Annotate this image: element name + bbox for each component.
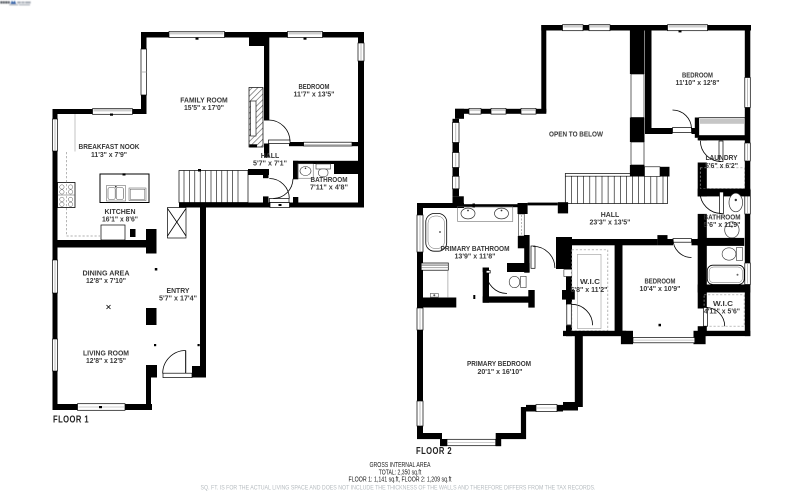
svg-text:11'3" x 7'9": 11'3" x 7'9" xyxy=(91,151,127,159)
svg-text:LAUNDRY: LAUNDRY xyxy=(706,153,738,162)
svg-text:15'5" x 17'0": 15'5" x 17'0" xyxy=(184,104,224,112)
svg-text:OPEN TO BELOW: OPEN TO BELOW xyxy=(549,130,603,139)
svg-text:11'10" x 12'8": 11'10" x 12'8" xyxy=(676,79,720,87)
svg-text:FLOOR 1: 1,141 sq.ft, FLOOR 2:: FLOOR 1: 1,141 sq.ft, FLOOR 2: 1,209 sq.… xyxy=(349,477,452,484)
svg-text:16'1" x 8'6": 16'1" x 8'6" xyxy=(102,216,138,224)
svg-text:5'7" x 17'4": 5'7" x 17'4" xyxy=(159,295,197,303)
svg-text:5'6" x 11'9": 5'6" x 11'9" xyxy=(704,221,741,229)
svg-text:6'8" x 11'2": 6'8" x 11'2" xyxy=(571,286,608,294)
svg-text:W.I.C: W.I.C xyxy=(580,277,601,286)
svg-text:4'11" x 5'6": 4'11" x 5'6" xyxy=(704,308,740,316)
svg-text:SQ. FT. IS FOR THE ACTUAL LIVI: SQ. FT. IS FOR THE ACTUAL LIVING SPACE A… xyxy=(201,485,596,492)
svg-text:PRIMARY BEDROOM: PRIMARY BEDROOM xyxy=(467,359,531,368)
svg-text:5'7" x 7'1": 5'7" x 7'1" xyxy=(253,160,287,168)
svg-text:7'11" x 4'8": 7'11" x 4'8" xyxy=(310,184,348,192)
svg-text:12'8" x 7'10": 12'8" x 7'10" xyxy=(86,277,126,285)
svg-text:13'9" x 11'8": 13'9" x 11'8" xyxy=(455,253,496,261)
svg-text:FLOOR 2: FLOOR 2 xyxy=(416,445,452,457)
svg-text:23'3" x 13'5": 23'3" x 13'5" xyxy=(590,219,631,227)
svg-text:5'6" x 6'2": 5'6" x 6'2" xyxy=(705,162,738,170)
svg-text:GROSS INTERNAL AREA: GROSS INTERNAL AREA xyxy=(370,462,431,469)
svg-text:FLOOR 1: FLOOR 1 xyxy=(53,414,89,426)
svg-text:11'7" x 13'5": 11'7" x 13'5" xyxy=(294,91,335,99)
svg-text:12'8" x 12'5": 12'8" x 12'5" xyxy=(86,357,126,365)
svg-text:20'1" x 16'10": 20'1" x 16'10" xyxy=(478,368,523,376)
svg-text:10'4" x 10'9": 10'4" x 10'9" xyxy=(640,285,681,293)
svg-text:BREAKFAST NOOK: BREAKFAST NOOK xyxy=(79,142,141,151)
svg-text:TOTAL: 2,350 sq.ft: TOTAL: 2,350 sq.ft xyxy=(379,470,422,477)
